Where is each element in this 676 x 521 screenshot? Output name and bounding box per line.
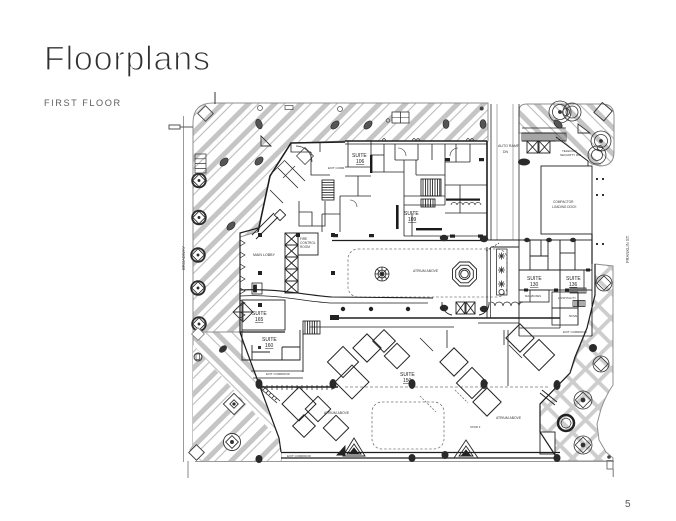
svg-text:BROADWAY: BROADWAY bbox=[181, 246, 186, 270]
svg-text:COMPACTOR: COMPACTOR bbox=[553, 200, 574, 204]
svg-text:106: 106 bbox=[356, 159, 365, 165]
svg-text:ATRIUM ABOVE: ATRIUM ABOVE bbox=[413, 269, 439, 273]
svg-text:SECURITY RM: SECURITY RM bbox=[560, 153, 581, 157]
svg-text:AUTO RAMP: AUTO RAMP bbox=[498, 144, 520, 148]
svg-text:EXIT CORRIDOR: EXIT CORRIDOR bbox=[287, 454, 312, 458]
svg-text:ROOM: ROOM bbox=[300, 245, 310, 249]
svg-text:EXIT CORR.: EXIT CORR. bbox=[328, 166, 345, 170]
svg-text:136: 136 bbox=[569, 282, 578, 288]
svg-text:MAIN LOBBY: MAIN LOBBY bbox=[253, 253, 276, 257]
svg-text:HOSPITALITY: HOSPITALITY bbox=[558, 296, 576, 300]
svg-text:EXIT CORRIDOR: EXIT CORRIDOR bbox=[266, 372, 291, 376]
svg-text:109: 109 bbox=[408, 217, 417, 223]
svg-text:130: 130 bbox=[530, 282, 539, 288]
svg-text:ATRIUM ABOVE: ATRIUM ABOVE bbox=[324, 411, 350, 415]
svg-text:160: 160 bbox=[265, 343, 274, 349]
svg-text:STAIR 3: STAIR 3 bbox=[470, 425, 481, 429]
svg-text:EXIT CORRIDOR: EXIT CORRIDOR bbox=[563, 330, 588, 334]
svg-text:DN: DN bbox=[503, 150, 508, 154]
svg-text:MOVE: MOVE bbox=[569, 314, 577, 318]
svg-text:LOADING DOCK: LOADING DOCK bbox=[552, 205, 577, 209]
svg-text:ATRIUM ABOVE: ATRIUM ABOVE bbox=[496, 416, 522, 420]
svg-text:MAILBOXES: MAILBOXES bbox=[525, 294, 541, 298]
svg-text:165: 165 bbox=[255, 317, 264, 323]
svg-text:FRANKLIN ST.: FRANKLIN ST. bbox=[625, 235, 630, 263]
